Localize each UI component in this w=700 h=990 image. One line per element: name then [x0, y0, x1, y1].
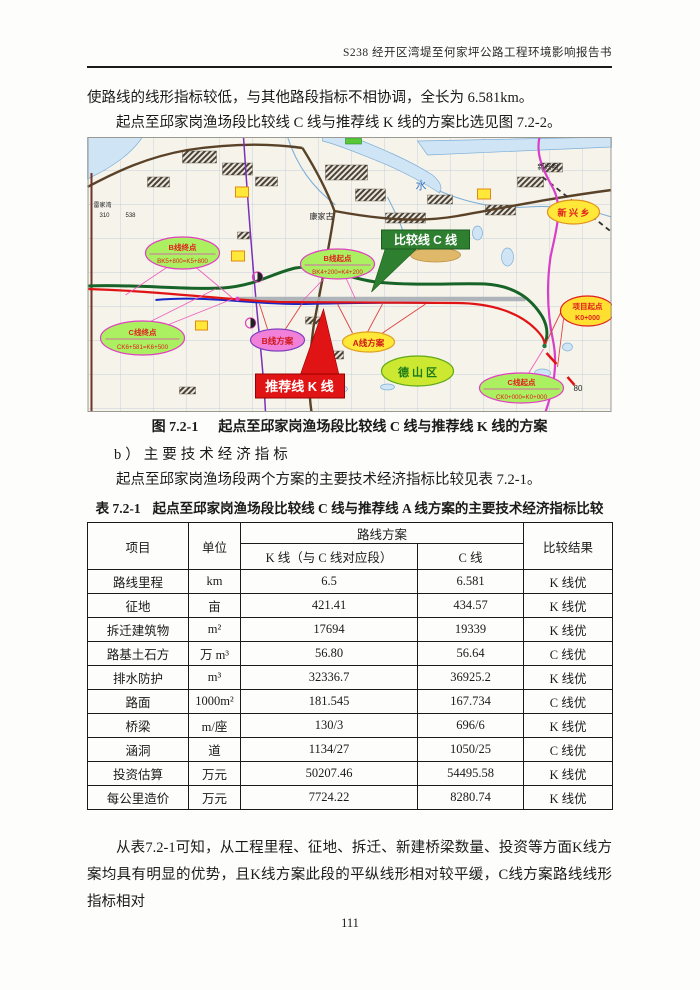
map-label-538: 538 — [126, 213, 137, 219]
svg-text:BK5+800=K5+800: BK5+800=K5+800 — [157, 258, 208, 265]
svg-text:C线起点: C线起点 — [508, 377, 536, 387]
paragraph-table-ref: 起点至邱家岗渔场段两个方案的主要技术经济指标比较见表 7.2-1。 — [87, 470, 612, 491]
map-tan-ellipse — [411, 248, 461, 262]
table-title-label: 表 7.2-1 — [96, 497, 141, 517]
map-ellipse-proj-start: 项目起点 K0+000 — [561, 296, 613, 326]
table-row: 路线里程km6.56.581K 线优 — [88, 570, 613, 594]
map-ellipse-a-scheme: A线方案 — [343, 332, 395, 352]
table-row: 排水防护m³32336.736925.2K 线优 — [88, 666, 613, 690]
figure-caption: 图 7.2-1 起点至邱家岗渔场段比较线 C 线与推荐线 K 线的方案 — [87, 416, 612, 436]
section-heading-b: b）主要技术经济指标 — [114, 443, 292, 464]
paragraph-continuation: 使路线的线形指标较低，与其他路段指标不相协调，全长为 6.581km。 — [87, 88, 612, 109]
map-ellipse-b-start: B线起点 BK4+200=K4+200 — [301, 249, 375, 279]
svg-text:B线终点: B线终点 — [169, 242, 197, 252]
svg-text:CK6+581=K6+500: CK6+581=K6+500 — [117, 344, 169, 351]
map-label-xinxingju: 新兴咀 — [538, 162, 559, 171]
table-row: 涵洞道1134/271050/25C 线优 — [88, 738, 613, 762]
map-ellipse-b-end: B线终点 BK5+800=K5+800 — [146, 237, 220, 269]
svg-text:B线起点: B线起点 — [324, 253, 352, 263]
map-label-310: 310 — [100, 213, 111, 219]
svg-text:CK0+000=K0+000: CK0+000=K0+000 — [496, 394, 548, 401]
col-header-scheme-group: 路线方案 — [241, 523, 524, 544]
document-page: S238 经开区湾堤至何家坪公路工程环境影响报告书 使路线的线形指标较低，与其他… — [0, 0, 700, 990]
col-header-c-line: C 线 — [418, 544, 524, 570]
map-label-leijiawan: 雷家湾 — [94, 201, 112, 209]
paragraph-conclusion: 从表7.2-1可知，从工程里程、征地、拆迁、新建桥梁数量、投资等方面K线方案均具… — [87, 835, 612, 916]
map-banner-c-label: 比较线 C 线 — [394, 232, 457, 247]
table-row: 路基土石方万 m³56.8056.64C 线优 — [88, 642, 613, 666]
map-ellipse-deshan: 德 山 区 — [382, 356, 454, 386]
page-header-title: S238 经开区湾堤至何家坪公路工程环境影响报告书 — [87, 44, 612, 60]
table-row: 拆迁建筑物m²1769419339K 线优 — [88, 618, 613, 642]
table-row: 路面1000m²181.545167.734C 线优 — [88, 690, 613, 714]
map-label-80: 80 — [574, 384, 583, 393]
svg-text:C线终点: C线终点 — [129, 327, 157, 337]
table-row: 征地亩421.41434.57K 线优 — [88, 594, 613, 618]
map-green-box — [346, 138, 362, 144]
col-header-unit: 单位 — [189, 523, 241, 570]
figure-caption-label: 图 7.2-1 — [152, 416, 199, 436]
map-banner-k-label: 推荐线 K 线 — [265, 379, 334, 394]
svg-text:B线方案: B线方案 — [262, 336, 294, 346]
table-row: 桥梁m/座130/3696/6K 线优 — [88, 714, 613, 738]
paragraph-figure-ref: 起点至邱家岗渔场段比较线 C 线与推荐线 K 线的方案比选见图 7.2-2。 — [87, 113, 612, 134]
map-convergence-point — [542, 344, 546, 348]
comparison-table: 项目 单位 路线方案 比较结果 K 线（与 C 线对应段） C 线 路线里程km… — [87, 522, 613, 810]
svg-text:K0+000: K0+000 — [575, 315, 600, 322]
comparison-table-wrapper: 项目 单位 路线方案 比较结果 K 线（与 C 线对应段） C 线 路线里程km… — [87, 522, 612, 810]
map-label-shui: 水 — [416, 179, 427, 192]
figure-caption-title: 起点至邱家岗渔场段比较线 C 线与推荐线 K 线的方案 — [218, 416, 547, 436]
route-map: 康家古 新兴咀 水 雷家湾 310 538 80 推荐线 K 线 比较线 C 线 — [87, 137, 612, 412]
page-number: 111 — [0, 916, 700, 931]
svg-text:项目起点: 项目起点 — [573, 301, 603, 311]
map-ellipse-b-scheme: B线方案 — [251, 329, 305, 351]
svg-text:德 山 区: 德 山 区 — [397, 365, 437, 379]
table-row: 每公里造价万元7724.228280.74K 线优 — [88, 786, 613, 810]
table-header-row-1: 项目 单位 路线方案 比较结果 — [88, 523, 613, 544]
col-header-k-line: K 线（与 C 线对应段） — [241, 544, 418, 570]
map-ellipse-xinxing: 新 兴 乡 — [548, 200, 600, 224]
table-title-text: 起点至邱家岗渔场段比较线 C 线与推荐线 A 线方案的主要技术经济指标比较 — [153, 497, 604, 517]
table-title: 表 7.2-1 起点至邱家岗渔场段比较线 C 线与推荐线 A 线方案的主要技术经… — [87, 497, 612, 517]
map-ellipse-c-end: C线终点 CK6+581=K6+500 — [101, 321, 185, 355]
map-ellipse-c-start: C线起点 CK0+000=K0+000 — [480, 373, 564, 403]
route-map-figure: 康家古 新兴咀 水 雷家湾 310 538 80 推荐线 K 线 比较线 C 线 — [87, 137, 612, 412]
header-rule — [87, 66, 612, 68]
table-row: 投资估算万元50207.4654495.58K 线优 — [88, 762, 613, 786]
svg-text:BK4+200=K4+200: BK4+200=K4+200 — [312, 269, 363, 276]
map-label-kangjiagu: 康家古 — [310, 211, 334, 221]
svg-text:A线方案: A线方案 — [353, 338, 385, 348]
svg-text:新 兴 乡: 新 兴 乡 — [557, 207, 589, 218]
col-header-result: 比较结果 — [524, 523, 613, 570]
col-header-item: 项目 — [88, 523, 189, 570]
